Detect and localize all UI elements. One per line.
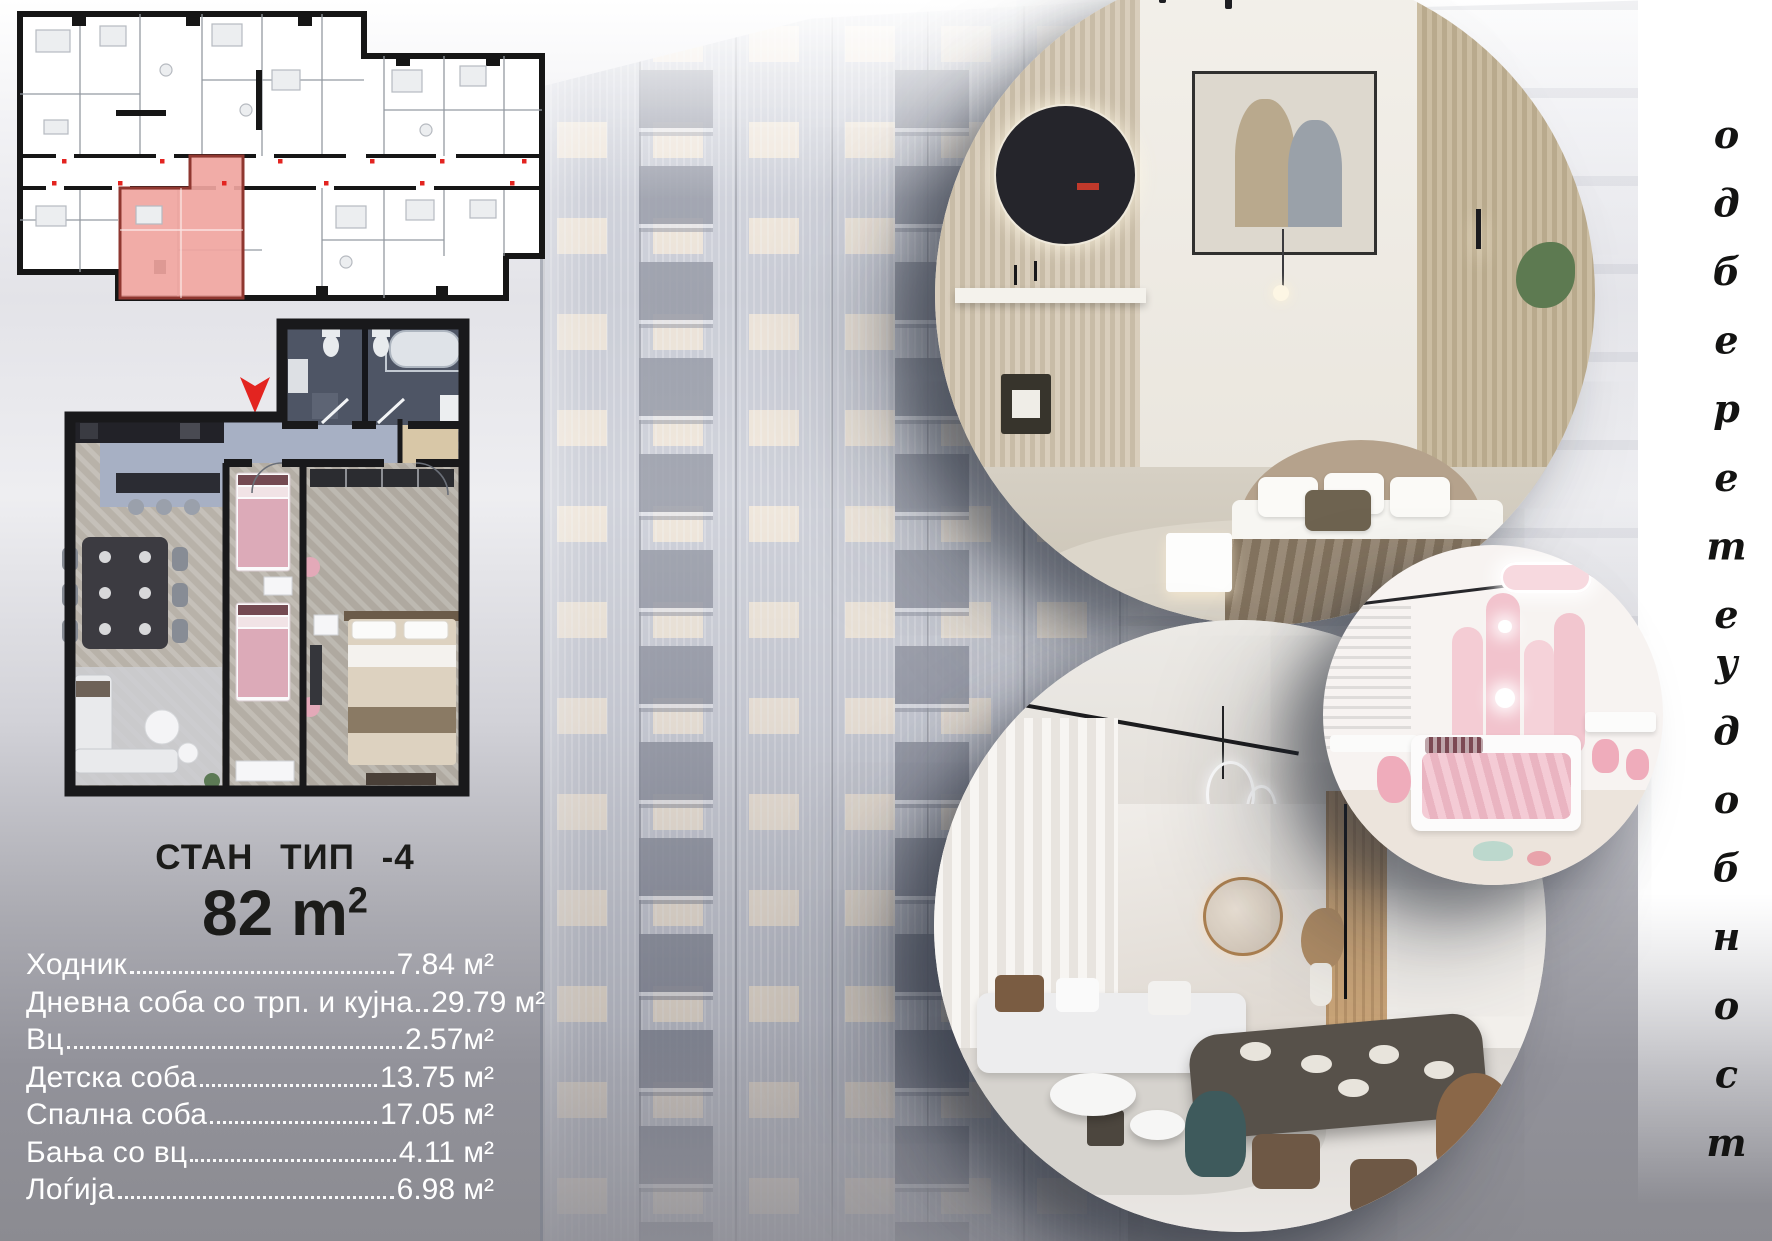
coffee-table	[1130, 1110, 1185, 1141]
vertical-tagline-word1: одберете	[1704, 112, 1749, 660]
sofa-cushion	[995, 975, 1044, 1012]
unit-3d-floor-plan	[60, 315, 470, 805]
art-shape	[1235, 99, 1296, 227]
bedroom-photo-circle	[935, 0, 1595, 625]
unit-area-value: 82 m	[202, 877, 348, 949]
dining-chair	[1436, 1073, 1516, 1171]
room-row: Лоѓија6.98 м²	[26, 1173, 494, 1211]
room-row: Дневна соба со трп. и кујна29.79 м²	[26, 986, 494, 1024]
room-name: Ходник	[26, 948, 127, 982]
room-area: 4.11 м²	[399, 1136, 494, 1170]
mirror-reflection	[1077, 183, 1099, 190]
spot-light	[1159, 0, 1166, 3]
bed-pillow	[1390, 477, 1449, 518]
candlestick	[1034, 261, 1037, 281]
room-name: Детска соба	[26, 1061, 197, 1095]
shopping-bag	[1001, 374, 1051, 433]
brochure-page: одберете удобност	[0, 0, 1772, 1241]
dotted-leader	[416, 1009, 428, 1012]
coffee-table	[1050, 1073, 1136, 1116]
plate	[1240, 1042, 1271, 1060]
room-area-list: Ходник7.84 м² Дневна соба со трп. и кујн…	[26, 948, 494, 1211]
whale-plush-toy	[1473, 841, 1514, 861]
candlestick	[1014, 265, 1017, 285]
unit-type-title: СТАН ТИП -4	[95, 838, 475, 878]
wood-slat-wall	[1417, 0, 1595, 493]
wall-sconce-light	[1476, 209, 1481, 249]
checkered-pillow	[1425, 737, 1483, 754]
dining-stool	[1350, 1159, 1417, 1214]
room-row: Ходник7.84 м²	[26, 948, 494, 986]
room-area: 7.84 м²	[397, 948, 494, 982]
room-area: 2.57м²	[405, 1023, 494, 1057]
room-name: Лоѓија	[26, 1173, 115, 1207]
dotted-leader	[67, 1046, 402, 1049]
plate	[1424, 1061, 1455, 1079]
vertical-tagline-word2: удобност	[1704, 640, 1749, 1188]
building-floor-plan	[16, 10, 548, 306]
bed-accent-pillow	[1305, 490, 1371, 531]
room-area: 13.75 м²	[380, 1061, 494, 1095]
room-row: Спална соба17.05 м²	[26, 1098, 494, 1136]
wall-art-frame	[1192, 71, 1376, 255]
art-shape	[1288, 120, 1341, 227]
dotted-leader	[210, 1121, 377, 1124]
dotted-leader	[190, 1159, 396, 1162]
vase	[1310, 963, 1331, 1006]
glowing-star-light	[1495, 688, 1515, 708]
room-area: 29.79 м²	[431, 986, 545, 1020]
plate	[1369, 1045, 1400, 1063]
kids-room-photo-circle	[1323, 545, 1663, 885]
plate	[1301, 1055, 1332, 1073]
pendant-light-bulb	[1273, 285, 1289, 301]
room-name: Вц	[26, 1023, 64, 1057]
pink-plush-chair	[1377, 756, 1411, 804]
kids-bed	[1411, 735, 1581, 830]
dining-chair	[1185, 1091, 1246, 1177]
room-name: Бања со вц	[26, 1136, 187, 1170]
room-area: 6.98 м²	[397, 1173, 494, 1207]
console-shelf	[955, 288, 1146, 303]
pink-blanket	[1422, 753, 1572, 820]
sofa-cushion	[1056, 978, 1099, 1012]
pampas-grass	[1301, 908, 1344, 969]
kids-desk	[1585, 712, 1656, 732]
unit-area-title: 82 m2	[95, 876, 475, 950]
room-row: Вц2.57м²	[26, 1023, 494, 1061]
room-row: Детска соба13.75 м²	[26, 1061, 494, 1099]
dotted-leader	[200, 1084, 377, 1087]
round-wall-mirror	[1203, 877, 1282, 956]
unit-area-superscript: 2	[348, 880, 368, 921]
window-with-blinds	[1323, 606, 1411, 756]
plate	[1338, 1079, 1369, 1097]
round-mirror	[994, 104, 1137, 247]
dining-stool	[1252, 1134, 1319, 1189]
cloud-ceiling-lamp	[1500, 562, 1592, 593]
window-desk	[1330, 735, 1418, 752]
shopping-bag-label	[1012, 390, 1040, 419]
pendant-light-wire	[1282, 229, 1284, 289]
nightstand	[1166, 533, 1232, 592]
room-name: Спална соба	[26, 1098, 207, 1132]
balcony-column	[639, 70, 713, 1241]
dotted-leader	[130, 971, 394, 974]
sofa-cushion	[1148, 981, 1191, 1015]
unit-bathroom	[283, 324, 464, 425]
room-row: Бања со вц4.11 м²	[26, 1136, 494, 1174]
room-area: 17.05 м²	[380, 1098, 494, 1132]
pink-stool	[1592, 739, 1619, 773]
crab-plush-toy	[1527, 851, 1551, 866]
dotted-leader	[118, 1196, 394, 1199]
pink-stool	[1626, 749, 1650, 780]
pink-headboard-arch	[1554, 613, 1585, 756]
spot-light	[1225, 0, 1232, 9]
glowing-star-light	[1498, 620, 1512, 634]
room-name: Дневна соба со трп. и кујна	[26, 986, 413, 1020]
pink-headboard-arch	[1486, 593, 1520, 756]
location-arrow-icon	[240, 377, 270, 413]
